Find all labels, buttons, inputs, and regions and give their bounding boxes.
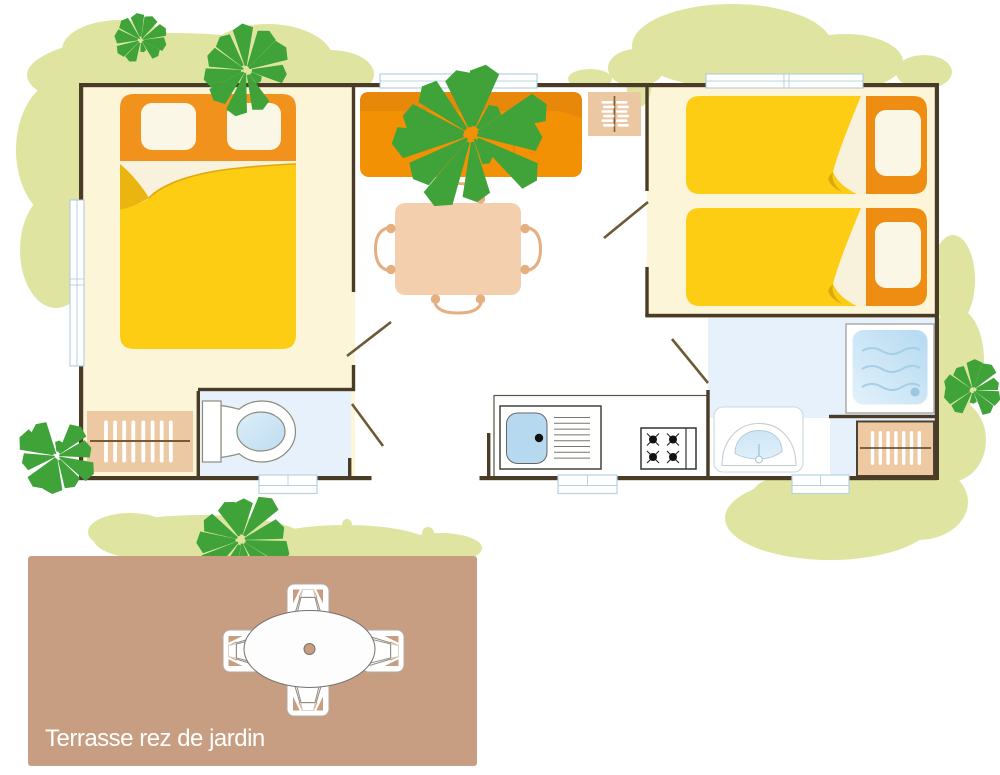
svg-text:Terrasse rez de jardin: Terrasse rez de jardin — [45, 725, 265, 752]
